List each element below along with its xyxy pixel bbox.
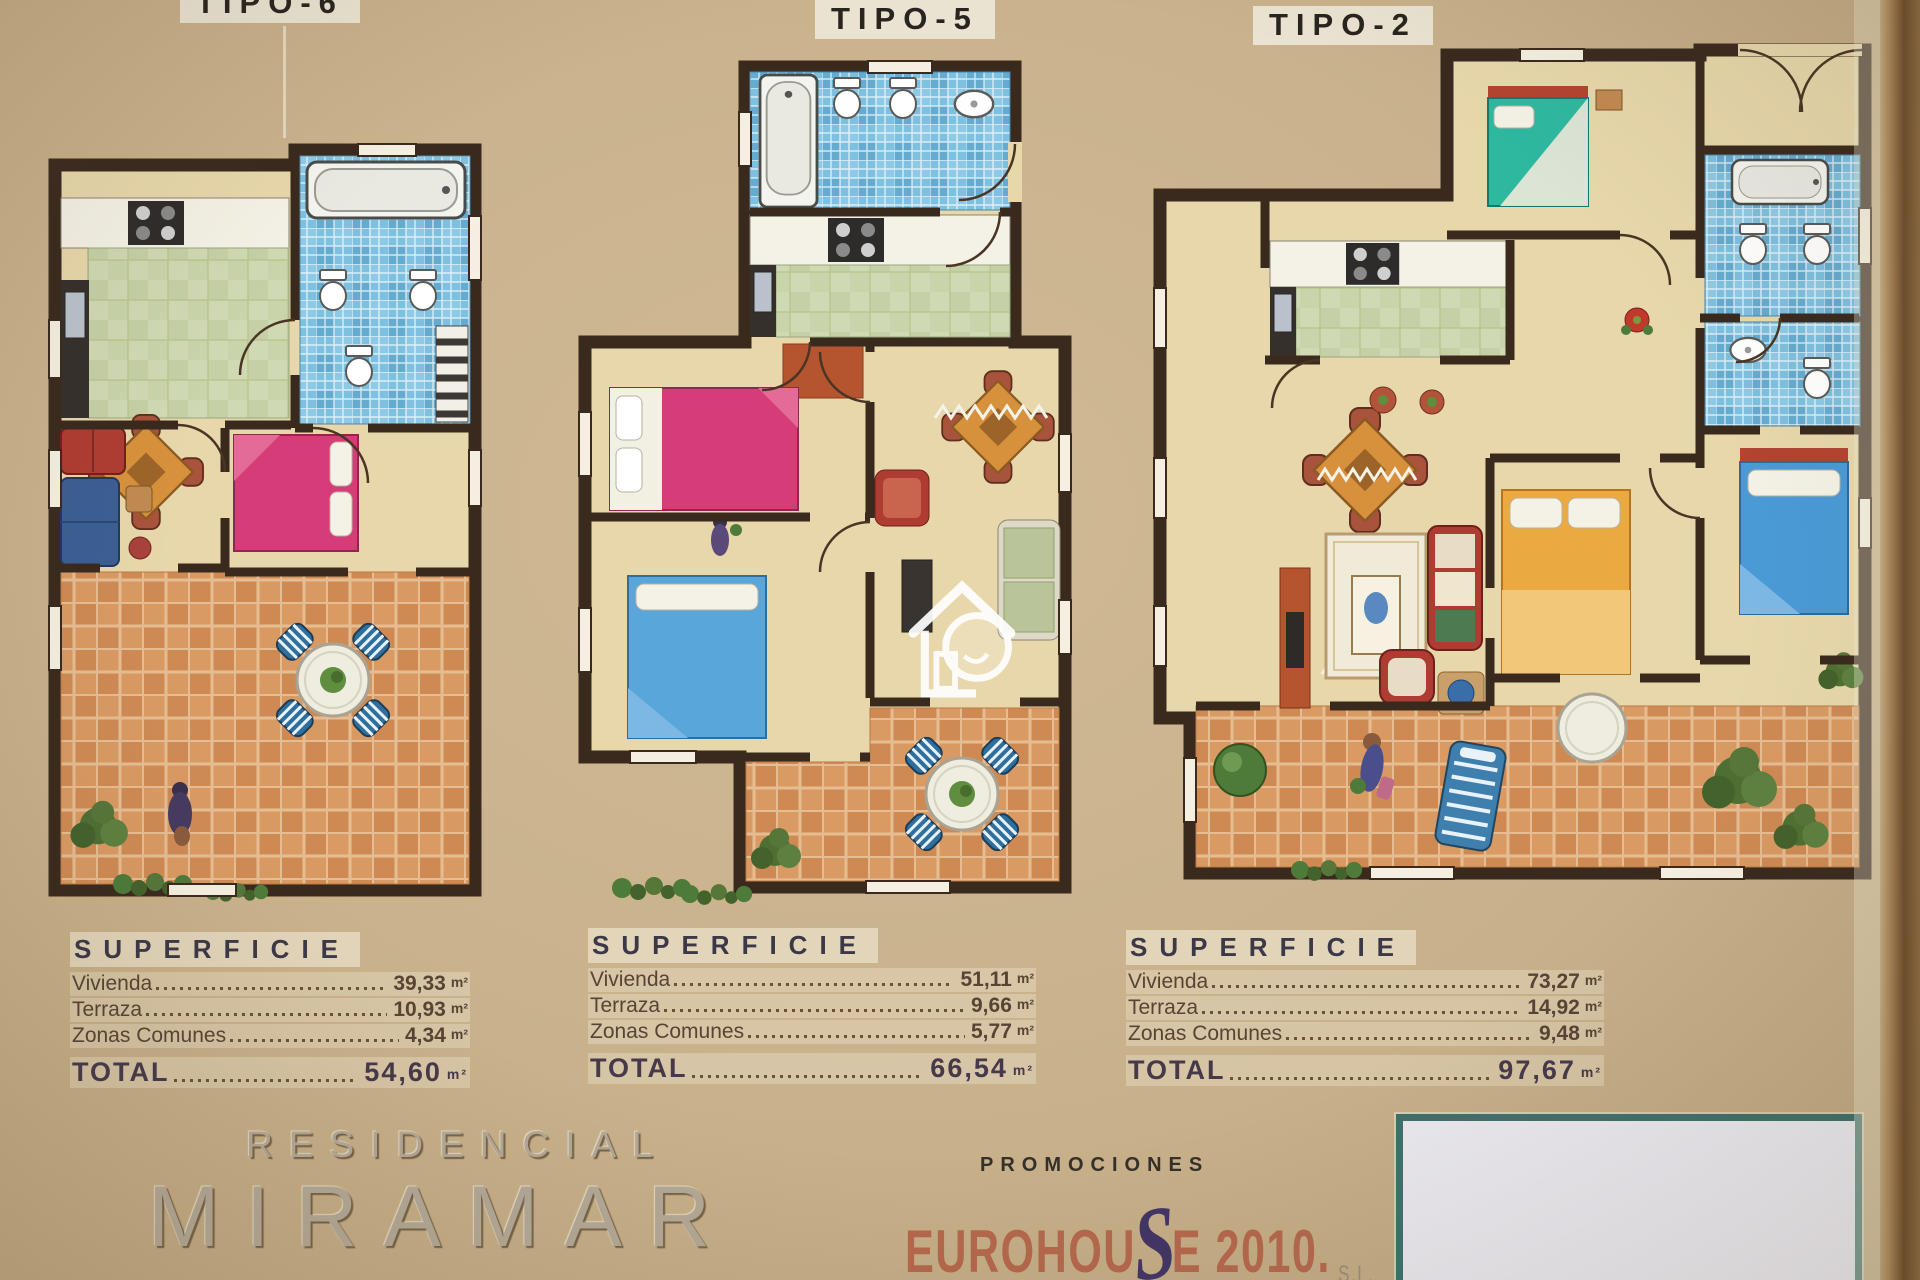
tipo2-kitchen xyxy=(1270,241,1510,357)
shrub-icon xyxy=(612,877,691,900)
terrace-table xyxy=(1558,694,1626,762)
row-unit: m² xyxy=(1013,1062,1034,1078)
superficie-table-tipo2: SUPERFICIE Vivienda 73,27 m² Terraza 14,… xyxy=(1126,930,1604,1086)
table-row: Vivienda 39,33 m² xyxy=(70,972,470,996)
row-label: Terraza xyxy=(1128,996,1198,1020)
tipo6-bedroom xyxy=(234,435,358,551)
dotted-leader xyxy=(146,1013,387,1016)
table-row: Zonas Comunes 5,77 m² xyxy=(588,1020,1036,1044)
table-row: Vivienda 73,27 m² xyxy=(1126,970,1604,994)
row-unit: m² xyxy=(451,974,468,990)
row-unit: m² xyxy=(1585,972,1602,988)
dotted-leader xyxy=(174,1079,359,1082)
photo-crease xyxy=(283,26,286,138)
row-label: Vivienda xyxy=(590,968,670,992)
row-value: 9,66 xyxy=(971,994,1012,1018)
poster-edge xyxy=(1880,0,1920,1280)
row-unit: m² xyxy=(1585,1024,1602,1040)
row-unit: m² xyxy=(1017,1022,1034,1038)
tipo5-floorplan xyxy=(570,52,1075,907)
bidet-icon xyxy=(410,270,436,310)
dotted-leader xyxy=(1286,1037,1533,1040)
row-value: 9,48 xyxy=(1539,1022,1580,1046)
tipo2-bedroom-right xyxy=(1740,448,1848,614)
table-row: Zonas Comunes 4,34 m² xyxy=(70,1024,470,1048)
row-unit: m² xyxy=(447,1066,468,1082)
dotted-leader xyxy=(1230,1077,1493,1080)
total-value: 97,67 xyxy=(1498,1055,1576,1086)
row-label: Zonas Comunes xyxy=(72,1024,226,1048)
table-total-row: TOTAL 66,54 m² xyxy=(588,1053,1036,1084)
eurohouse-logo-suffix: E 2010. xyxy=(1172,1217,1331,1280)
row-label: Zonas Comunes xyxy=(590,1020,744,1044)
poster-edge-highlight xyxy=(1854,0,1880,1280)
row-unit: m² xyxy=(451,1026,468,1042)
bidet-icon xyxy=(890,78,916,118)
table-row: Vivienda 51,11 m² xyxy=(588,968,1036,992)
row-label: Vivienda xyxy=(1128,970,1208,994)
row-unit: m² xyxy=(451,1000,468,1016)
plan-title-tipo2: TIPO-2 xyxy=(1253,6,1433,45)
sink-icon xyxy=(955,91,993,117)
tipo5-kitchen xyxy=(750,215,1010,337)
sink-icon xyxy=(1730,338,1765,362)
row-label: Zonas Comunes xyxy=(1128,1022,1282,1046)
plan-title-tipo5: TIPO-5 xyxy=(815,0,995,39)
tipo2-bathroom-1 xyxy=(1705,155,1860,316)
shrub-icon xyxy=(681,884,752,905)
eurohouse-logo-prefix: EUROHOU xyxy=(905,1217,1136,1280)
plan-title-tipo6: TIPO-6 xyxy=(180,0,360,23)
total-value: 66,54 xyxy=(930,1053,1008,1084)
table-row: Zonas Comunes 9,48 m² xyxy=(1126,1022,1604,1046)
toilet-icon xyxy=(320,270,346,310)
row-unit: m² xyxy=(1581,1064,1602,1080)
dotted-leader xyxy=(156,987,387,990)
superficie-table-tipo6: SUPERFICIE Vivienda 39,33 m² Terraza 10,… xyxy=(70,932,470,1088)
row-unit: m² xyxy=(1017,970,1034,986)
superficie-table-tipo5: SUPERFICIE Vivienda 51,11 m² Terraza 9,6… xyxy=(588,928,1036,1084)
bathtub-icon xyxy=(760,75,817,207)
superficie-header: SUPERFICIE xyxy=(1126,930,1416,965)
toilet-icon xyxy=(1804,358,1830,398)
dotted-leader xyxy=(1212,985,1521,988)
stove-icon xyxy=(1346,243,1399,285)
total-label: TOTAL xyxy=(72,1057,170,1088)
row-label: Vivienda xyxy=(72,972,152,996)
company-sl-label: S.L. xyxy=(1338,1261,1375,1280)
empty-logo-box xyxy=(1396,1114,1862,1280)
toilet-icon xyxy=(834,78,860,118)
row-value: 10,93 xyxy=(393,998,446,1022)
total-label: TOTAL xyxy=(590,1053,688,1084)
row-unit: m² xyxy=(1017,996,1034,1012)
eurohouse-logo: EUROHOU S E 2010. S.L. xyxy=(905,1178,1374,1280)
table-row: Terraza 9,66 m² xyxy=(588,994,1036,1018)
row-value: 5,77 xyxy=(971,1020,1012,1044)
table-total-row: TOTAL 54,60 m² xyxy=(70,1057,470,1088)
row-unit: m² xyxy=(1585,998,1602,1014)
table-row: Terraza 14,92 m² xyxy=(1126,996,1604,1020)
dotted-leader xyxy=(664,1009,965,1012)
tipo2-bedroom-center xyxy=(1502,490,1630,674)
dotted-leader xyxy=(692,1075,925,1078)
eurohouse-logo-s: S xyxy=(1129,1181,1179,1280)
total-value: 54,60 xyxy=(364,1057,442,1088)
dotted-leader xyxy=(1202,1011,1521,1014)
row-value: 39,33 xyxy=(393,972,446,996)
toilet-icon xyxy=(346,346,372,386)
tipo2-entry-opening xyxy=(1738,44,1862,56)
agency-watermark-house-icon xyxy=(903,575,1021,705)
bush-icon xyxy=(1214,744,1266,796)
row-value: 51,11 xyxy=(960,968,1011,992)
bidet-icon xyxy=(1804,224,1830,264)
promociones-label: PROMOCIONES xyxy=(980,1154,1209,1177)
row-value: 4,34 xyxy=(405,1024,446,1048)
dotted-leader xyxy=(748,1035,965,1038)
stove-icon xyxy=(828,218,884,262)
stove-icon xyxy=(128,201,184,245)
tipo2-bathroom-2 xyxy=(1705,322,1860,426)
row-value: 73,27 xyxy=(1527,970,1580,994)
toilet-icon xyxy=(1740,224,1766,264)
tipo6-kitchen xyxy=(61,198,289,418)
residence-name: MIRAMAR xyxy=(148,1168,736,1267)
tipo2-floorplan xyxy=(1140,28,1880,888)
tipo6-floorplan xyxy=(28,120,483,910)
poster: TIPO-6 TIPO-5 TIPO-2 SUPERFICIE Vivienda… xyxy=(0,0,1920,1280)
table-total-row: TOTAL 97,67 m² xyxy=(1126,1055,1604,1086)
tipo5-bedroom-2 xyxy=(628,576,766,738)
row-label: Terraza xyxy=(72,998,142,1022)
superficie-header: SUPERFICIE xyxy=(70,932,360,967)
tipo6-bathroom xyxy=(300,156,470,424)
row-label: Terraza xyxy=(590,994,660,1018)
tipo5-bathroom xyxy=(750,72,1010,210)
total-label: TOTAL xyxy=(1128,1055,1226,1086)
superficie-header: SUPERFICIE xyxy=(588,928,878,963)
dotted-leader xyxy=(230,1039,399,1042)
residencial-label: RESIDENCIAL xyxy=(246,1124,669,1166)
dotted-leader xyxy=(674,983,954,986)
table-row: Terraza 10,93 m² xyxy=(70,998,470,1022)
row-value: 14,92 xyxy=(1527,996,1580,1020)
